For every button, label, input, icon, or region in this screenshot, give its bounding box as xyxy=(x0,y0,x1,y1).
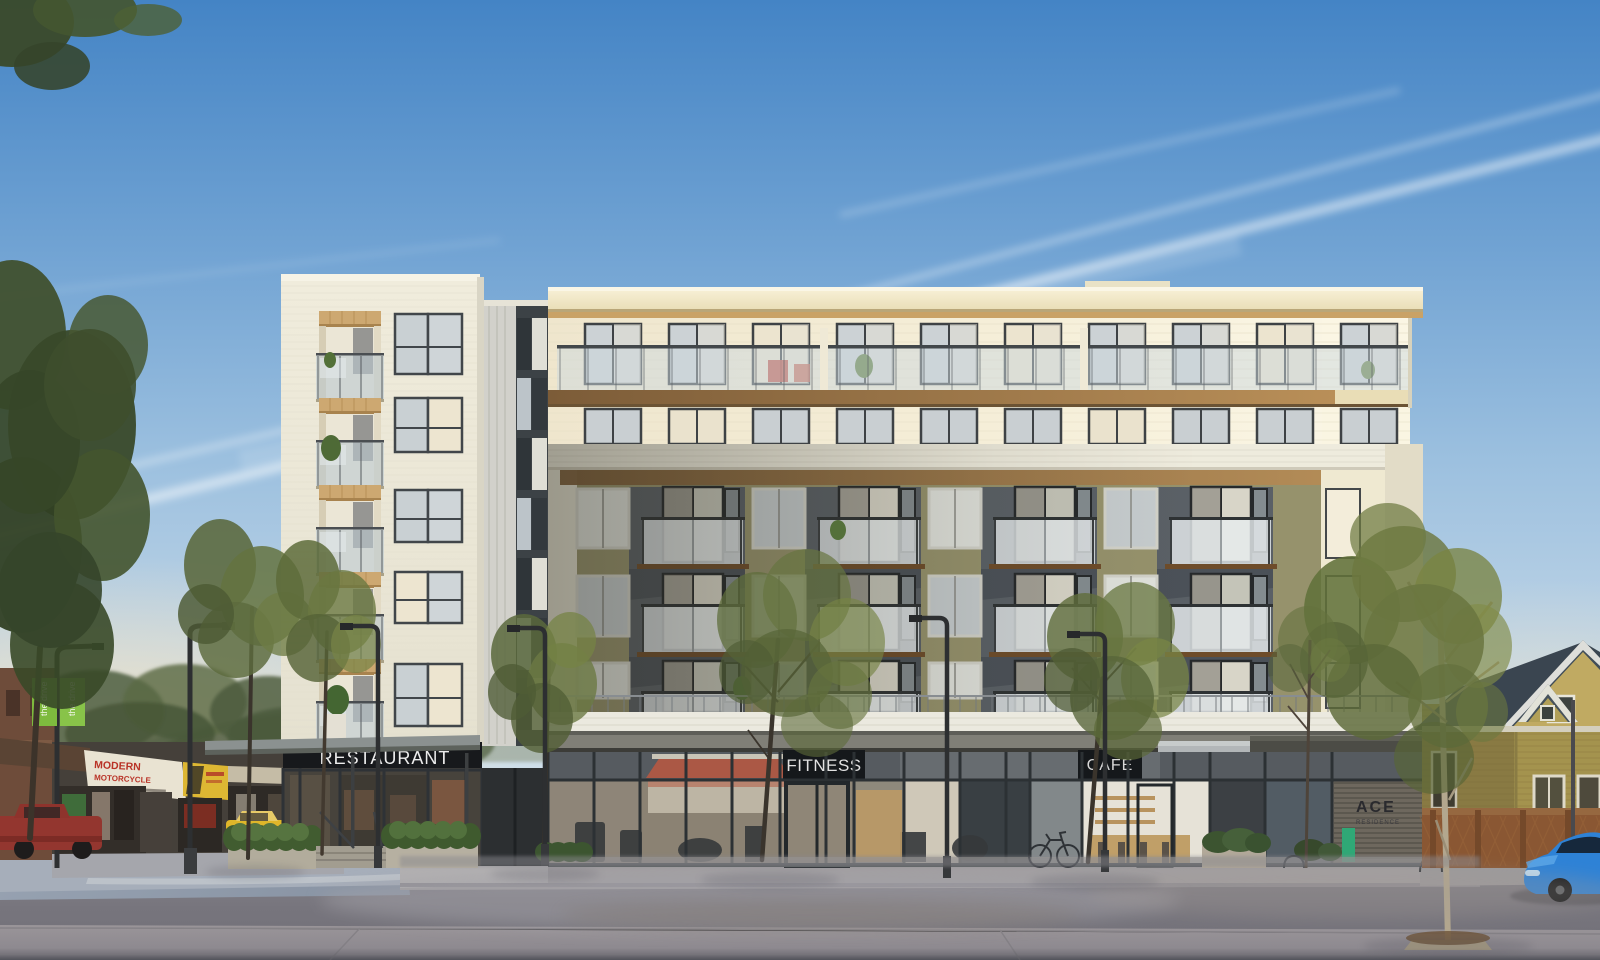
svg-text:RESIDENCE: RESIDENCE xyxy=(1356,820,1400,826)
svg-text:FITNESS: FITNESS xyxy=(786,756,861,775)
svg-text:MODERN: MODERN xyxy=(94,759,141,773)
svg-text:ACE: ACE xyxy=(1356,799,1396,816)
